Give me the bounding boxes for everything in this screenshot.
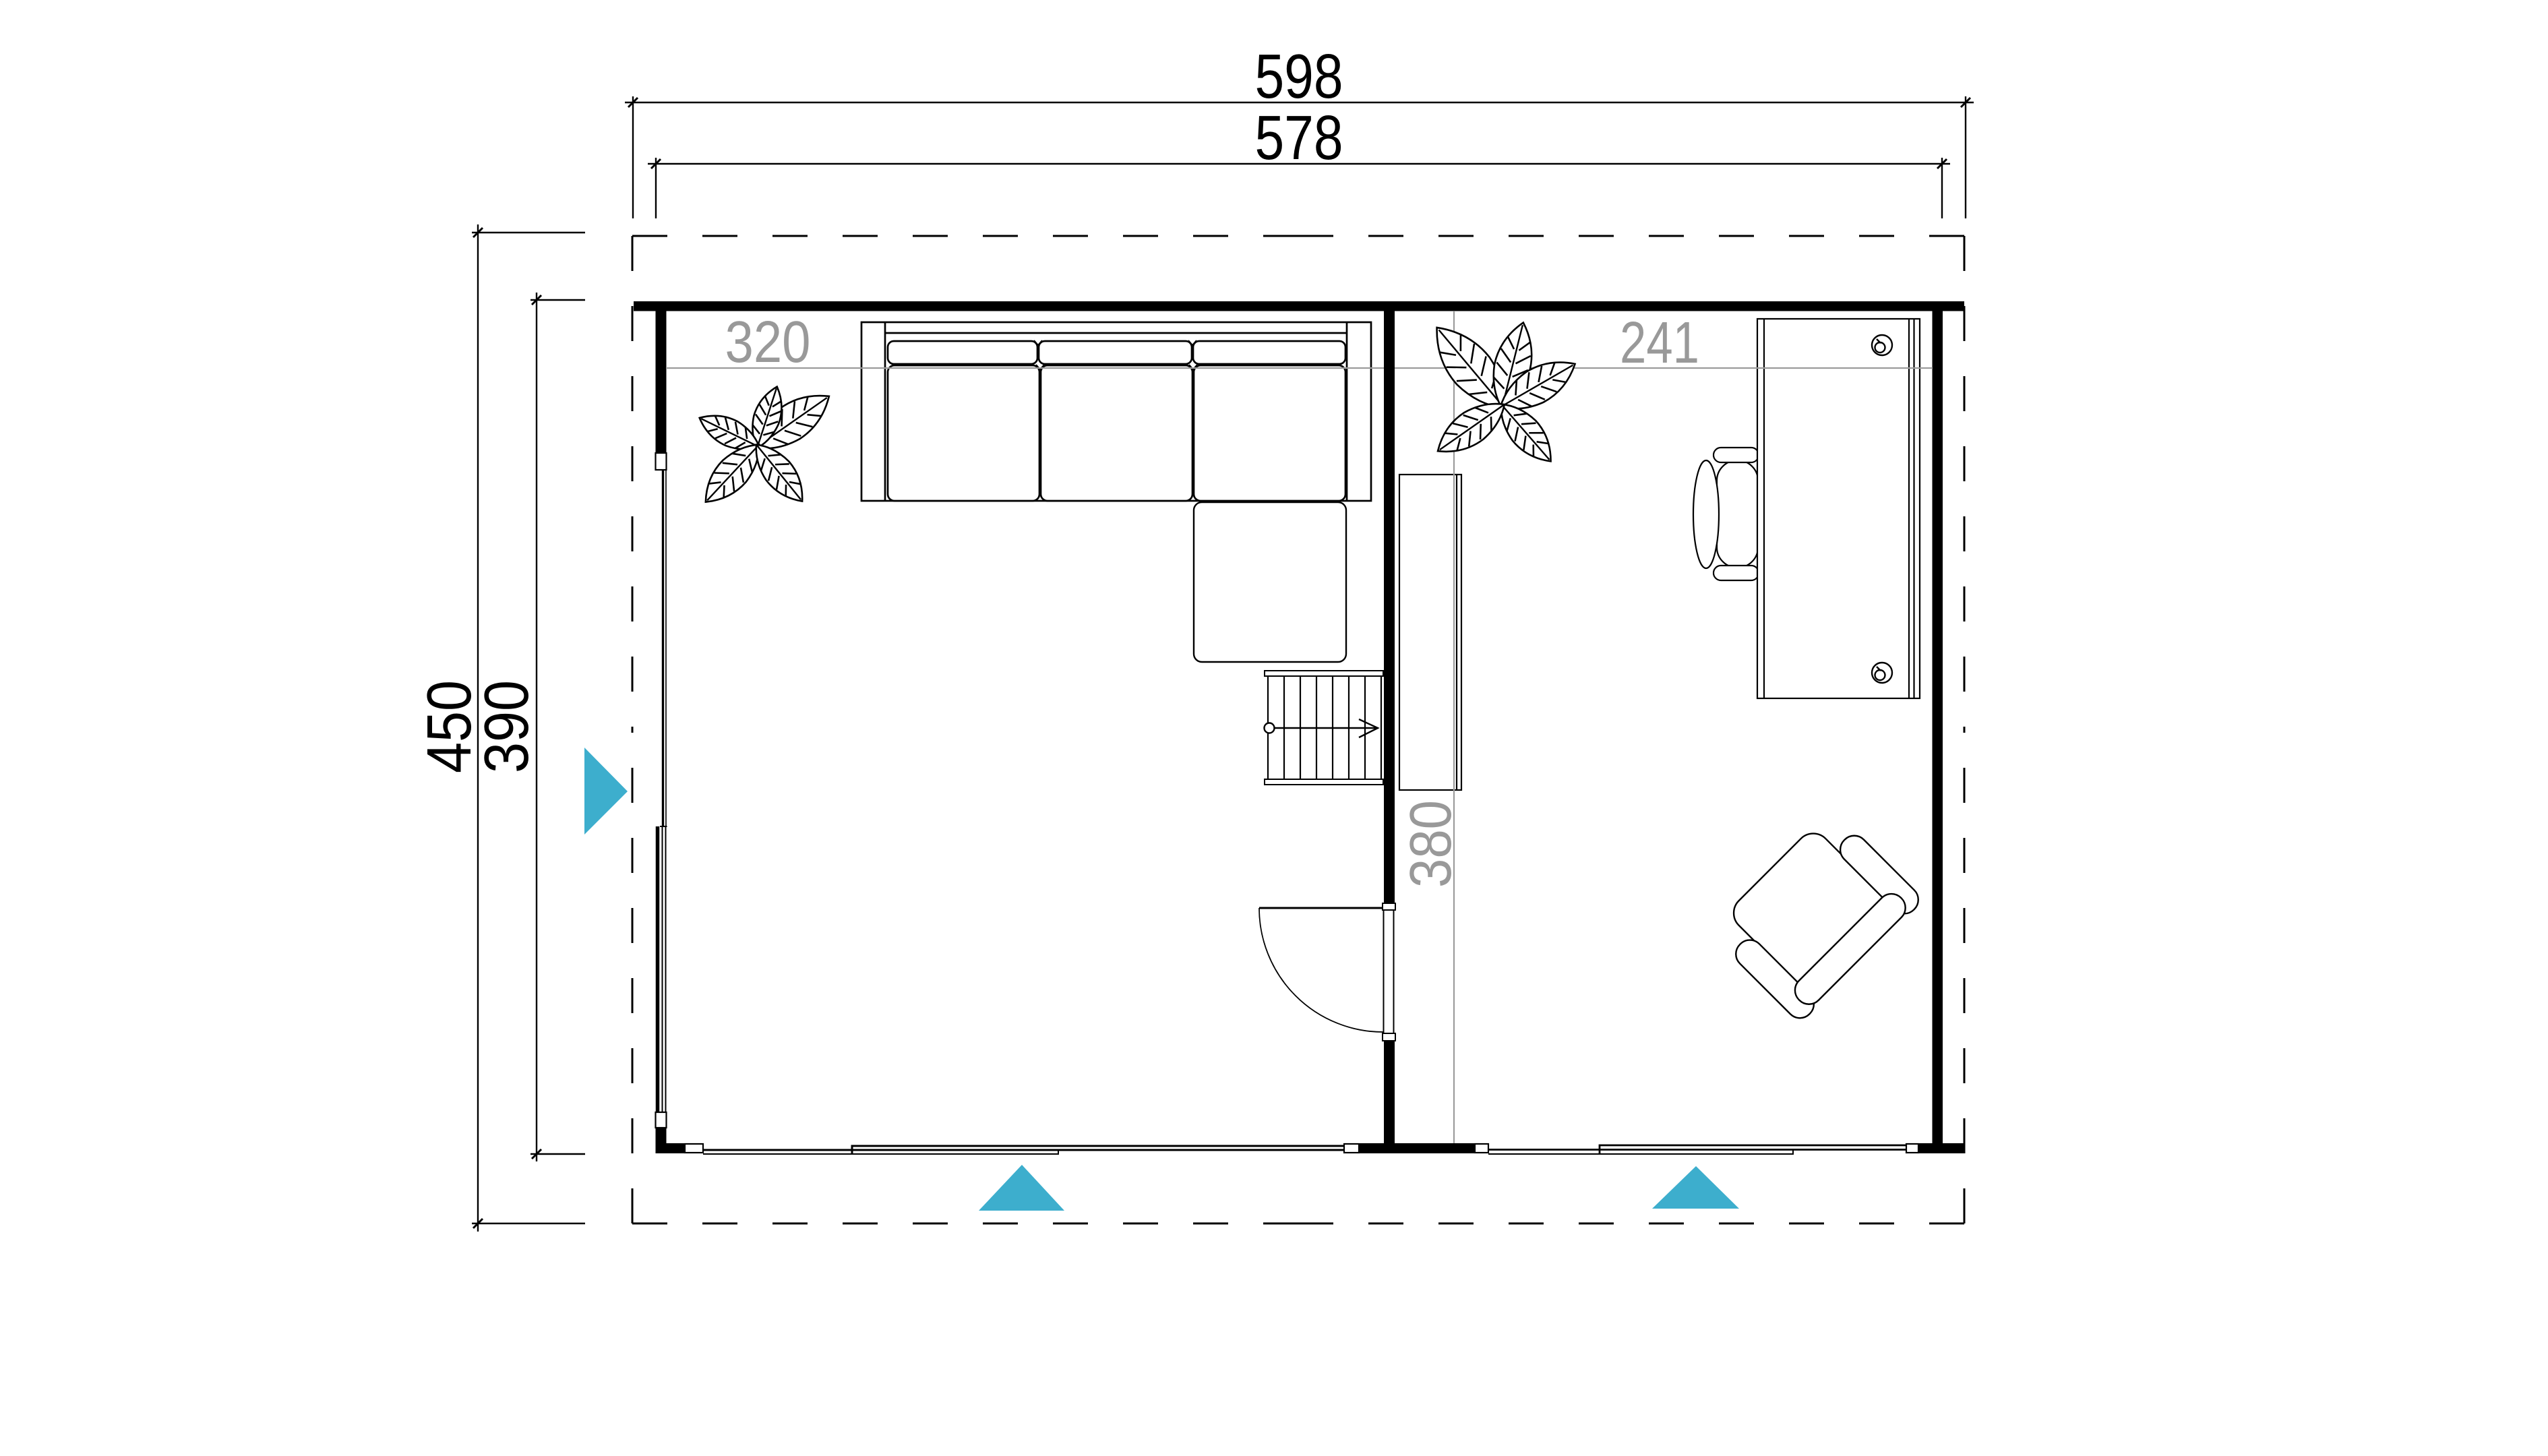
svg-text:390: 390	[471, 680, 541, 773]
svg-text:320: 320	[725, 309, 811, 375]
svg-text:598: 598	[1255, 41, 1343, 111]
svg-text:578: 578	[1255, 102, 1343, 173]
svg-text:241: 241	[1620, 310, 1699, 375]
